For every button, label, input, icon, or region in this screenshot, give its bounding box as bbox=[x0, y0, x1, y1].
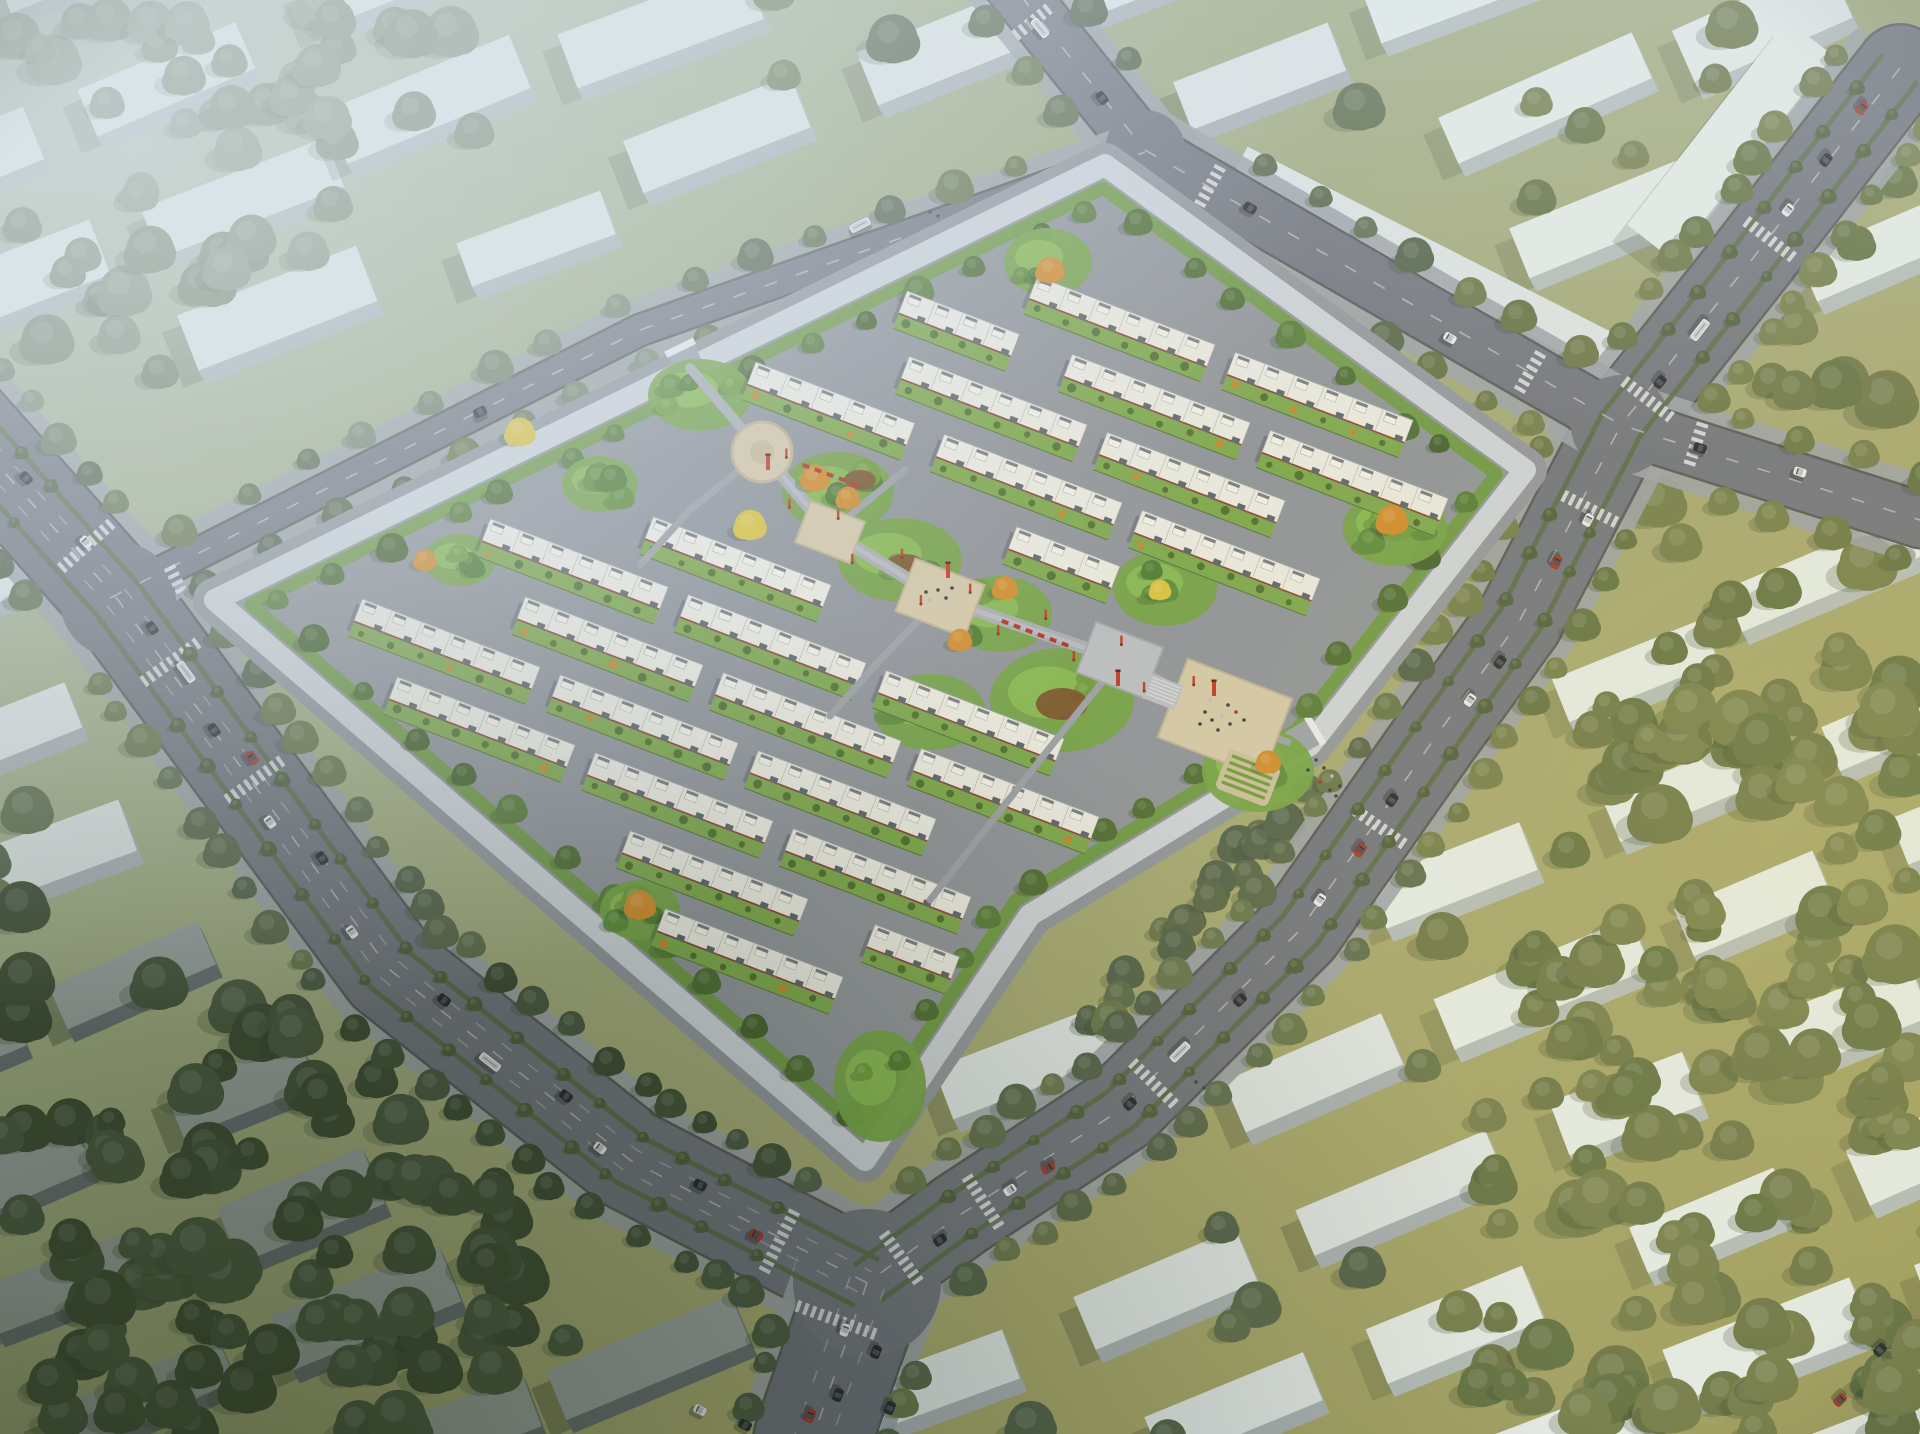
aerial-masterplan-scene bbox=[0, 0, 1920, 1434]
aerial-render-viewport bbox=[0, 0, 1920, 1434]
